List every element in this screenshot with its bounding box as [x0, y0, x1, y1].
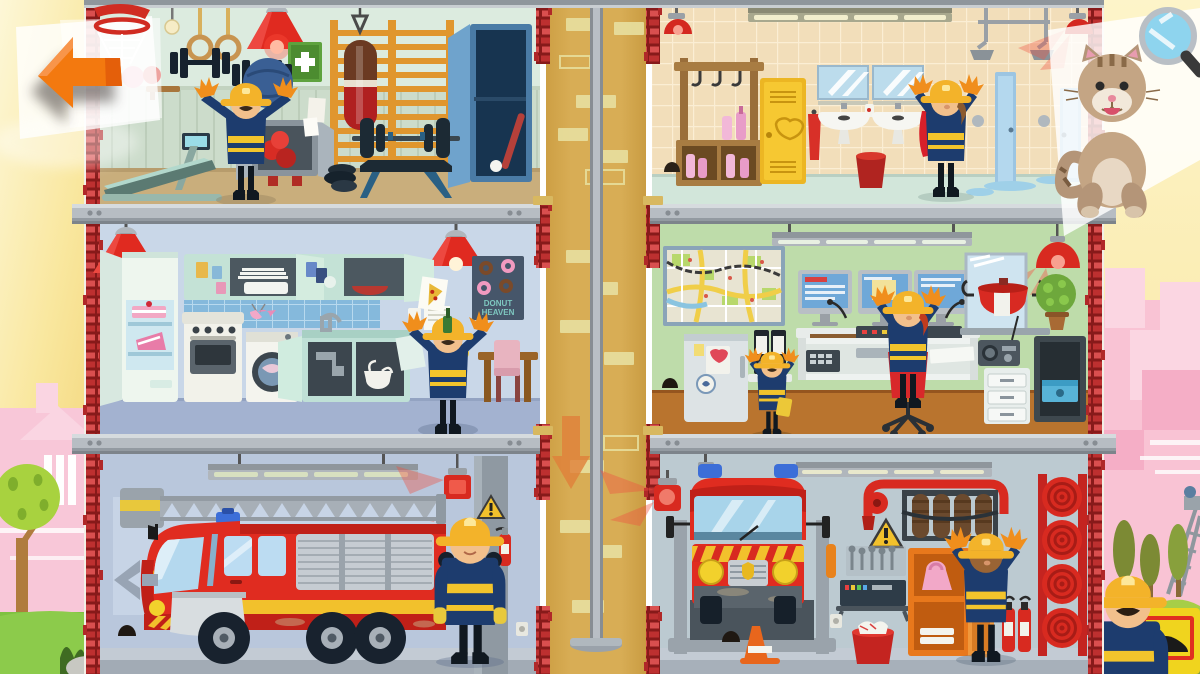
svg-text:DONUT: DONUT [484, 299, 513, 308]
